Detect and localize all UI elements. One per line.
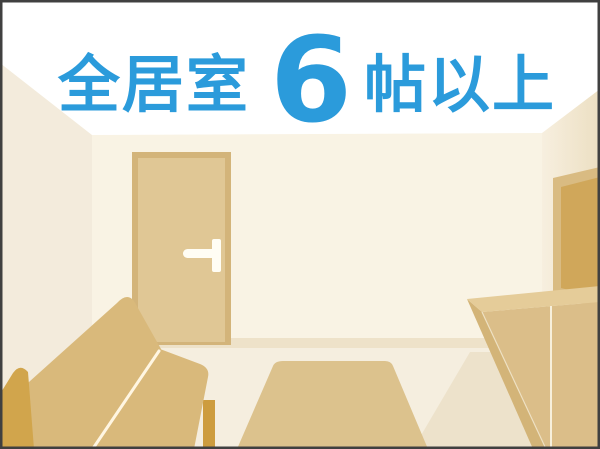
- ceiling: [0, 0, 600, 135]
- sofa-leg: [203, 400, 215, 449]
- door-handle-lever: [183, 249, 217, 258]
- wall-art-canvas: [561, 177, 600, 298]
- door: [132, 152, 231, 345]
- room-illustration: 全居室 6 帖以上: [0, 0, 600, 449]
- room-scene-svg: [0, 0, 600, 449]
